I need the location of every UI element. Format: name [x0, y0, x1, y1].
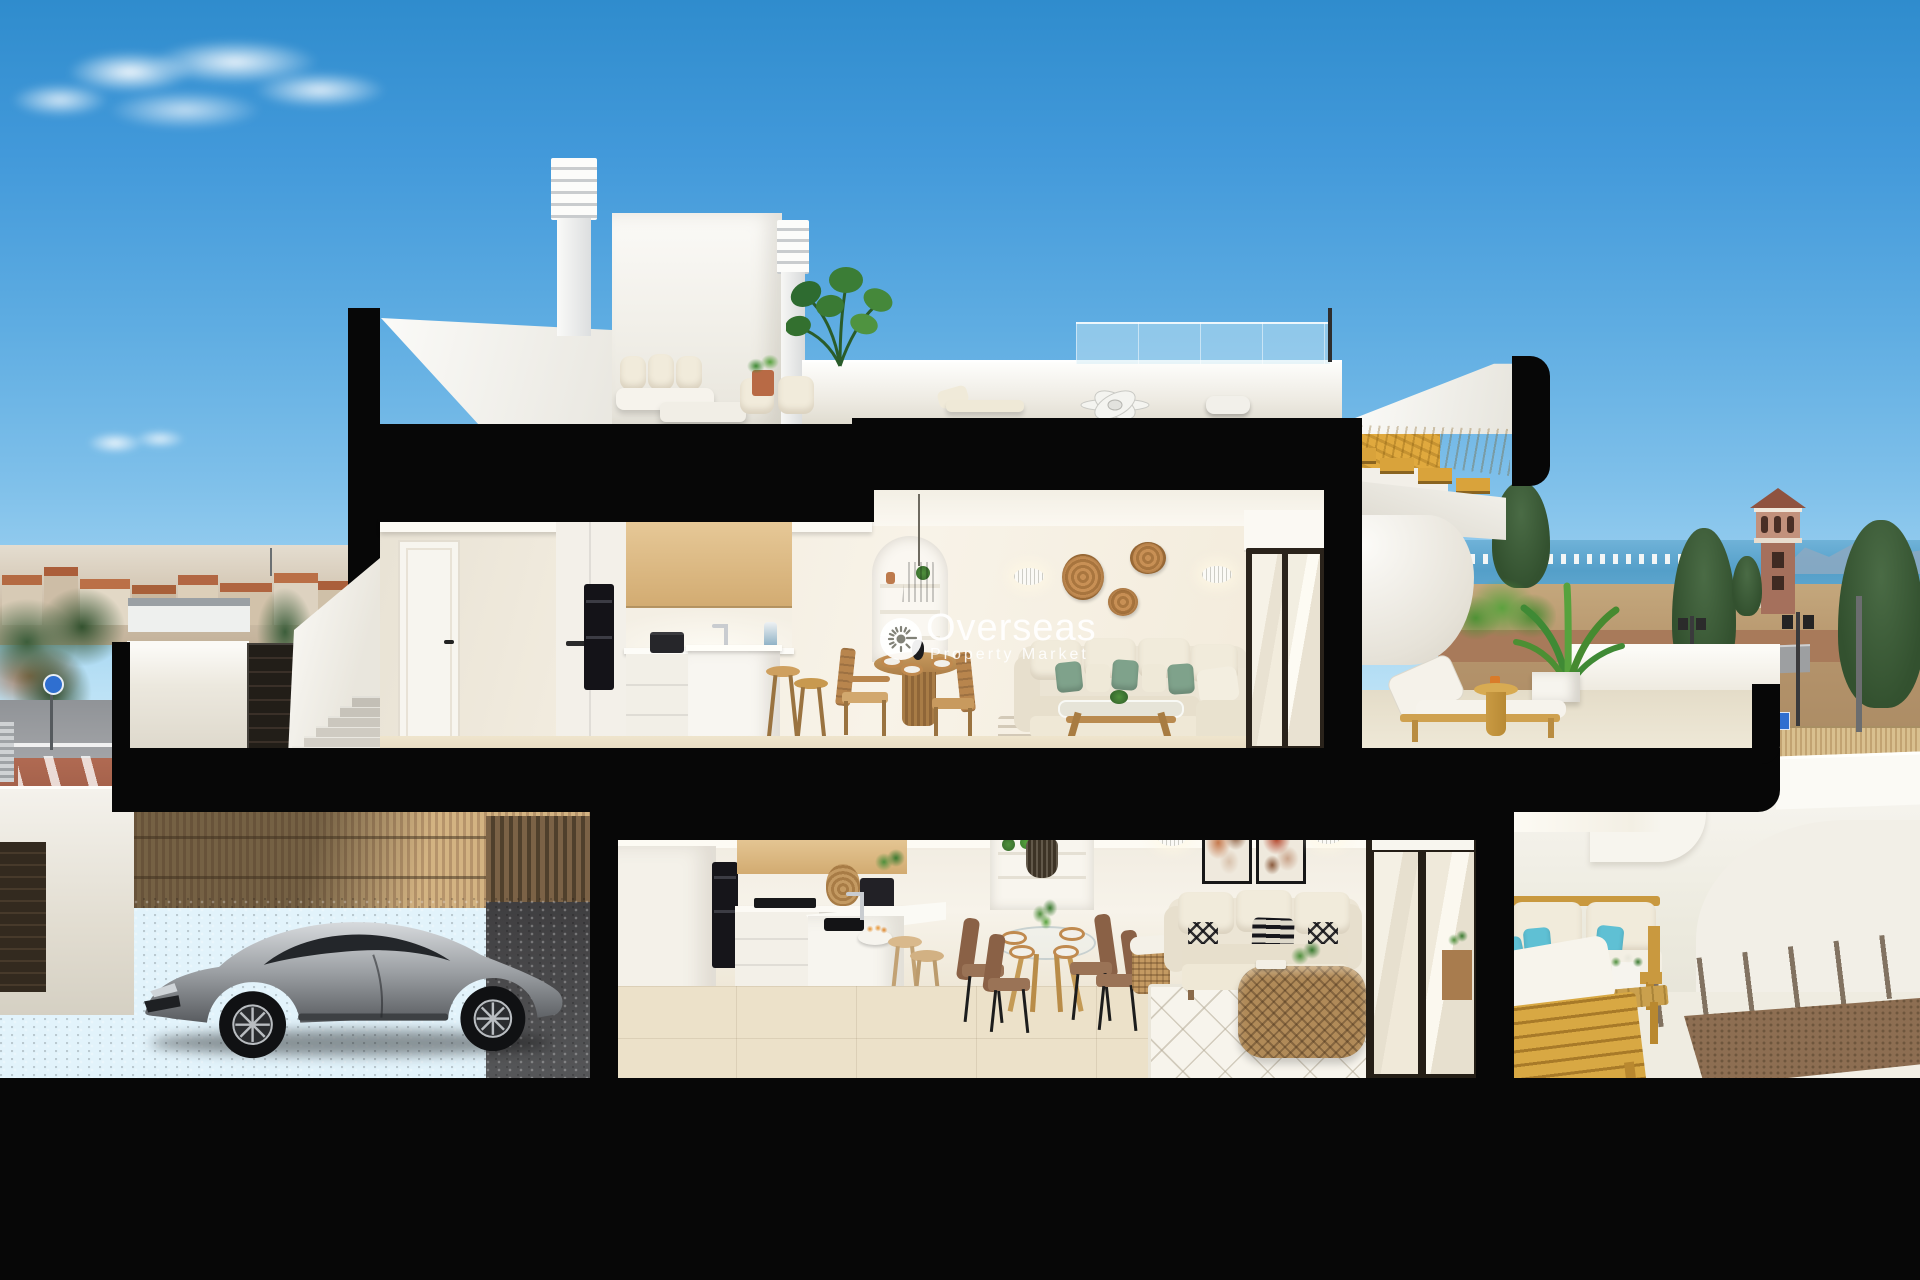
- chair-leg-metal: [1072, 974, 1080, 1020]
- exterior-step: [328, 716, 380, 727]
- stair-tread: [1456, 478, 1490, 494]
- street-sign-blue: [43, 674, 64, 695]
- cut-slab-roof-right: [852, 418, 1344, 490]
- roof-object: [1206, 396, 1250, 414]
- conifer-tree: [1732, 556, 1762, 616]
- oven-display: [714, 876, 736, 879]
- pendant-lamp-green: [902, 562, 938, 602]
- cushion: [778, 376, 814, 414]
- rattan-coffee-table: [1238, 966, 1366, 1058]
- exterior-step: [340, 706, 380, 717]
- roof-sofa-cushions: [738, 372, 820, 420]
- upper-wood-cabinets: [626, 522, 792, 608]
- pendant-cord: [918, 494, 920, 566]
- built-in-oven: [584, 584, 614, 690]
- tower-roof: [1750, 488, 1806, 508]
- dining-centerpiece: [1030, 898, 1060, 934]
- kitchen-plant: [872, 846, 906, 878]
- chair-leg: [882, 700, 886, 736]
- cloud-small: [70, 415, 210, 475]
- lamp-lantern: [1696, 618, 1706, 630]
- cushion: [620, 356, 646, 390]
- table-books: [1256, 960, 1286, 969]
- chair-leg: [844, 701, 848, 735]
- ceiling-fan: [1068, 388, 1162, 422]
- entry-door: [398, 540, 460, 756]
- car-sill: [298, 1014, 448, 1021]
- cut-cap-stair-end: [1512, 356, 1550, 486]
- cut-terrace-edge: [1752, 684, 1780, 764]
- chimney-shaft: [557, 218, 591, 336]
- cooking-pot: [650, 632, 684, 653]
- cut-wall-left-thin: [112, 642, 130, 754]
- cut-ground: [0, 1078, 1920, 1280]
- render-canvas: Overseas Property Market: [0, 0, 1920, 1280]
- table-leg-wood: [1650, 1002, 1658, 1044]
- island-countertop: [686, 645, 782, 651]
- cut-column-upper-terrace: [1324, 418, 1362, 752]
- wall-sconce: [1014, 568, 1044, 585]
- lounger-leg: [1412, 720, 1418, 742]
- roof-bench-cushions: [620, 352, 706, 392]
- neighbor-gate: [0, 842, 46, 992]
- stool-leg: [767, 675, 778, 741]
- glass-panel: [1252, 554, 1282, 746]
- cushion: [648, 354, 674, 390]
- cream-pillow: [1142, 664, 1166, 692]
- garden-wall: [127, 641, 249, 753]
- watermark-subtitle: Property Market: [930, 646, 1089, 664]
- lower-glass-door: [1364, 806, 1482, 1082]
- white-pillow: [1196, 665, 1240, 704]
- utility-pole: [1856, 596, 1862, 732]
- conifer-tree: [1838, 520, 1920, 708]
- exterior-step: [304, 736, 380, 747]
- oranges: [864, 924, 888, 934]
- watermark-title: Overseas: [926, 608, 1097, 648]
- upper-base-cabinet: [626, 654, 690, 742]
- sun-icon: [880, 618, 922, 660]
- kiosk: [0, 722, 14, 782]
- stair-tread: [1380, 458, 1414, 474]
- terrace-wall-top-band: [1776, 751, 1920, 809]
- exterior-step: [352, 696, 380, 707]
- table-leg-wood: [1054, 954, 1063, 1012]
- roof-coffee-table: [660, 402, 746, 422]
- stool-seat: [794, 678, 828, 689]
- upper-glass-door: [1244, 510, 1328, 752]
- sports-car: [138, 882, 574, 1068]
- cut-slab-lower-ceiling: [614, 804, 1482, 840]
- table-pedestal: [902, 672, 936, 726]
- cooktop: [754, 898, 816, 908]
- roof-plant: [744, 352, 782, 378]
- rattan-wall-disc: [1062, 554, 1104, 600]
- cloud-large: [0, 10, 470, 170]
- cut-column-carport: [590, 804, 618, 1086]
- glass-panel: [1374, 852, 1418, 1074]
- wall-sconce: [1202, 566, 1232, 583]
- stool-seat: [766, 666, 800, 677]
- cut-slab-roof-left: [378, 424, 874, 522]
- roof-sun-lounger: [936, 388, 1028, 420]
- green-pillow: [1167, 663, 1195, 695]
- door-handle: [444, 640, 454, 644]
- chair-leg-metal: [1022, 989, 1030, 1033]
- roller-blind-box: [1244, 510, 1328, 552]
- cut-slab-mid: [112, 748, 1780, 812]
- railing-post: [1328, 308, 1332, 362]
- console-plant-reflection: [1446, 928, 1468, 952]
- oven-display: [586, 600, 612, 603]
- dining-chair-brown: [986, 934, 1034, 1034]
- terrace-side-table: [1474, 676, 1518, 742]
- rattan-wall-disc: [1130, 542, 1166, 574]
- glass-panel: [1288, 554, 1320, 746]
- lower-base-drawers: [735, 912, 819, 992]
- cut-column-lower-terrace: [1476, 804, 1514, 1092]
- stool-seat: [910, 950, 944, 962]
- roof-glass-railing: [1076, 322, 1330, 364]
- stool-seat: [888, 936, 922, 948]
- lamp-pole: [1796, 612, 1800, 726]
- side-table-stem: [1486, 692, 1506, 736]
- lounger-leg: [1548, 718, 1554, 738]
- chimney-cap: [551, 158, 597, 220]
- oven-display: [714, 910, 736, 913]
- table-plant: [1110, 690, 1128, 704]
- lamp-lantern: [1678, 618, 1688, 630]
- chair-leg-metal: [990, 990, 997, 1032]
- console-table-reflection: [1442, 950, 1472, 1000]
- oven-display: [586, 636, 612, 639]
- chair-leg-metal: [1098, 986, 1106, 1030]
- faucet-body: [860, 892, 864, 920]
- monstera-plant: [786, 254, 894, 370]
- lounger-seat: [946, 400, 1024, 412]
- wicker-pendant: [1026, 838, 1058, 878]
- table-plant: [1288, 938, 1324, 972]
- watermark: Overseas Property Market: [874, 600, 1134, 680]
- kitchen-faucet: [846, 892, 866, 920]
- stair-tread: [1418, 468, 1452, 484]
- chair-leg-metal: [964, 976, 972, 1022]
- niche-vase: [886, 572, 895, 584]
- lamp-lantern: [1803, 615, 1814, 629]
- lamp-lantern: [1782, 615, 1793, 629]
- exterior-step: [316, 726, 380, 737]
- cushion: [676, 356, 702, 390]
- watermark-badge: [880, 618, 922, 660]
- sofa-leg: [1188, 990, 1194, 1000]
- street-lamp: [1778, 612, 1818, 726]
